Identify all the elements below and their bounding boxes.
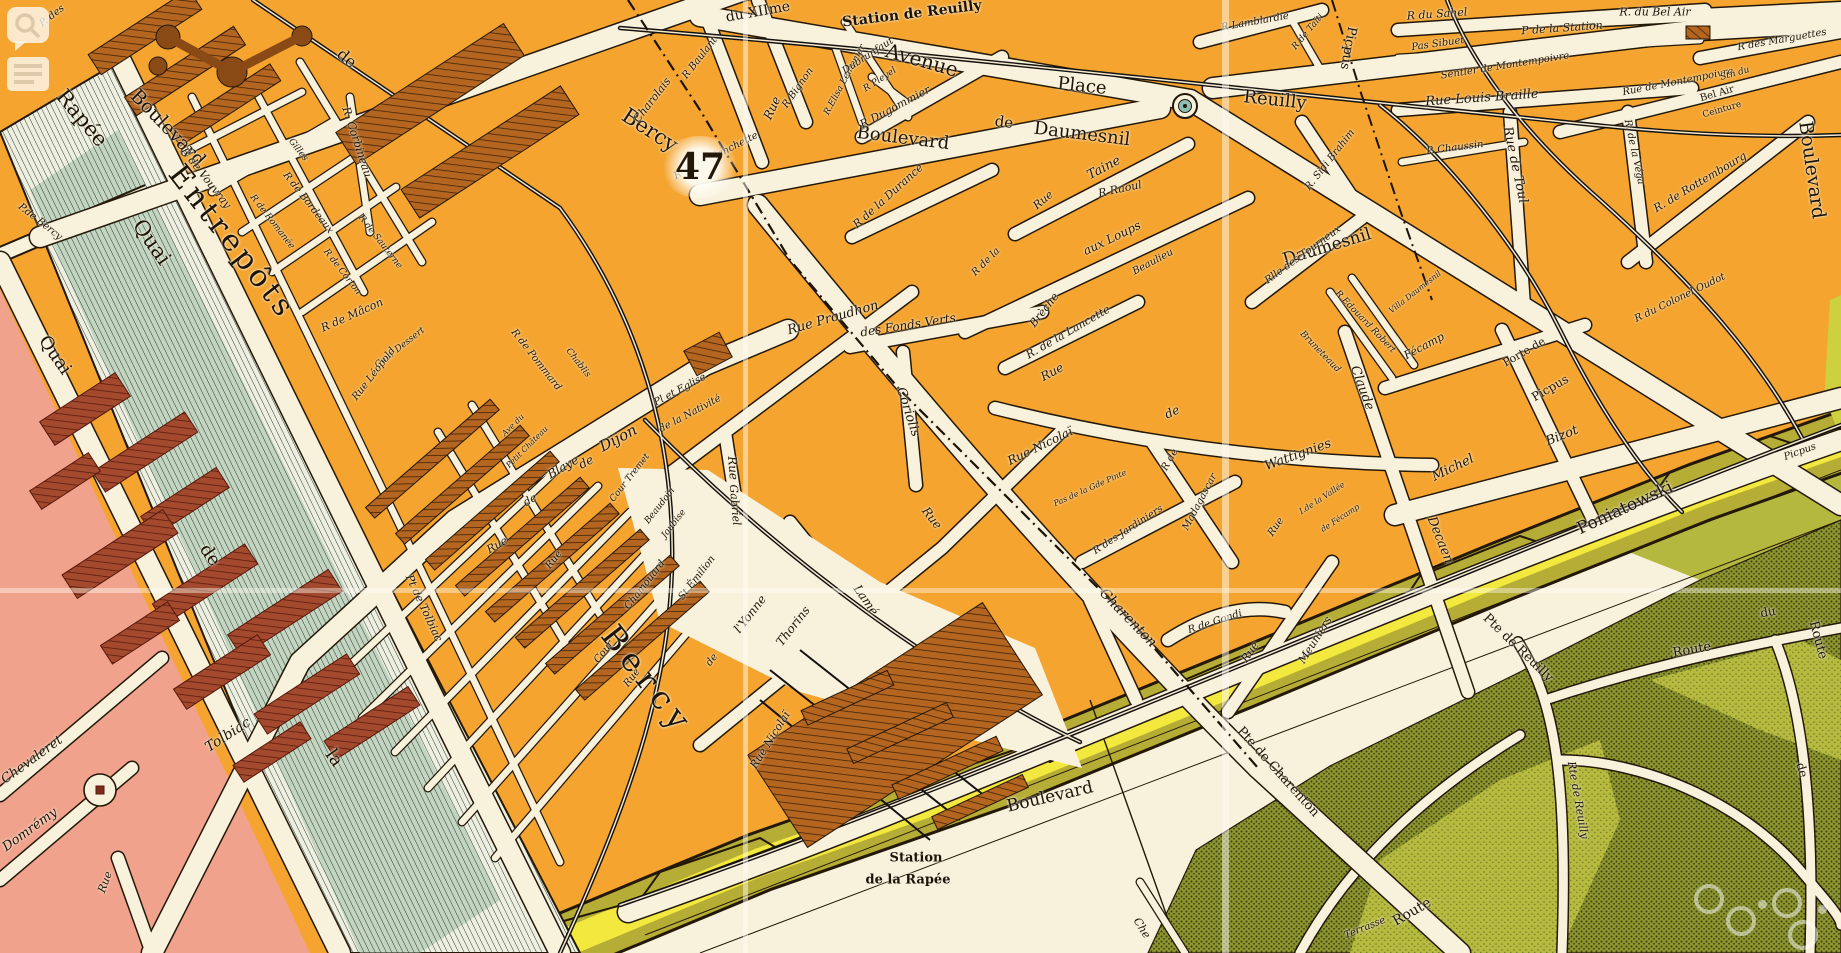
map-street-label: Rue — [1266, 516, 1286, 539]
map-street-label: Rue Léopold — [350, 346, 398, 403]
map-street-label: R des Jardiniers — [1091, 503, 1165, 556]
map-street-label: Pt de Tolbiac — [403, 572, 445, 643]
map-street-label: Daumesnil — [1033, 118, 1132, 151]
speech-bubble-magnifier-icon[interactable] — [6, 6, 52, 52]
map-street-label: R.Edouard Robert — [1333, 289, 1398, 355]
paper-crease — [0, 588, 1841, 593]
map-street-label: Meuniers — [1295, 614, 1334, 666]
map-street-label: Villa Daumesnil — [1387, 269, 1443, 315]
map-street-label: Cour Tremet — [608, 452, 652, 504]
map-street-label: P de la Station — [1521, 19, 1603, 38]
map-street-label: Bercy — [593, 618, 702, 743]
paper-crease — [1222, 0, 1229, 953]
map-street-label: de — [994, 112, 1015, 132]
map-street-label: R du Colonel Oudot — [1633, 271, 1727, 324]
map-street-label: la — [321, 745, 348, 771]
map-street-label: R. de la Véga — [1622, 118, 1647, 185]
map-street-label: Bizot — [1544, 423, 1581, 450]
map-street-label: Picpus — [1529, 372, 1571, 404]
map-street-label: Rue — [919, 504, 945, 531]
map-street-label: Rue — [1030, 188, 1055, 212]
map-street-label: Claude — [1347, 364, 1377, 413]
map-street-label: Ceinture — [1701, 100, 1742, 121]
map-street-label: Rue — [484, 534, 509, 556]
map-street-label: Picpus — [1782, 441, 1817, 463]
map-street-label: de — [704, 652, 720, 668]
map-street-label: Pte de Charenton — [1234, 724, 1323, 820]
map-street-label: Chamouard — [622, 558, 667, 611]
map-street-label: de — [1793, 761, 1810, 779]
map-street-label: R de Taïti — [1290, 12, 1326, 52]
map-street-label: aux Loups — [1081, 218, 1143, 258]
watermark-dot-icon — [1758, 900, 1767, 909]
map-street-label: P.de Bercy — [16, 201, 64, 242]
map-street-label: St Émilion — [676, 554, 717, 602]
map-street-label: R. Sidi Brahim — [1303, 127, 1357, 192]
map-street-label: Che — [1131, 915, 1154, 941]
map-street-label: Reuilly — [1242, 86, 1307, 113]
map-street-label: I.de la Vallée — [1298, 480, 1347, 516]
map-street-label: Rue de Toul — [1500, 125, 1531, 205]
map-street-label: Michel — [1429, 451, 1476, 484]
map-street-label: Ave du — [500, 412, 526, 438]
map-street-label: Blaye — [545, 453, 581, 482]
map-street-label: R de Corton — [321, 247, 363, 297]
map-street-label: Taine — [1085, 153, 1124, 183]
map-street-label: Rte de Reuilly — [1565, 760, 1591, 839]
map-street-label: Pas de la Gde Pinte — [1052, 468, 1127, 508]
map-street-label: Porte de — [1500, 335, 1547, 370]
map-street-label: R. Corbineau — [339, 105, 374, 179]
watermark-ring-icon — [1694, 884, 1724, 914]
map-street-label: de — [333, 44, 360, 71]
map-street-label: Quai — [128, 215, 176, 270]
text-lines-icon[interactable] — [6, 56, 52, 96]
map-street-label: R du Sahel — [1406, 5, 1467, 22]
map-street-label: Tolbiac — [202, 714, 253, 755]
watermark-ring-icon — [1726, 906, 1756, 936]
watermark-dot-icon — [1818, 905, 1827, 914]
map-street-label: du — [1759, 604, 1777, 620]
map-street-label: Brèche — [1027, 290, 1062, 329]
map-street-label: Beaulieu — [1131, 247, 1175, 278]
map-street-label: Terrasse — [1343, 915, 1387, 942]
map-street-label: R. de Rottembourg — [1651, 149, 1749, 215]
watermark-ring-icon — [1788, 920, 1818, 950]
map-street-label: Quai — [34, 331, 76, 378]
map-street-label: Picpus — [1337, 25, 1359, 71]
map-street-label: Place — [1056, 73, 1107, 99]
map-street-label: R Pleyel — [862, 66, 899, 95]
map-street-label: Poniatowski — [1574, 477, 1676, 539]
map-street-label: Pas Sibuet — [1411, 35, 1465, 53]
map-street-label: Station — [890, 851, 943, 866]
map-street-label: Domrémy — [0, 805, 60, 855]
map-street-label: R de — [1159, 447, 1180, 472]
map-street-label: Route — [1390, 895, 1434, 930]
map-street-label: R. du Bel Air — [1619, 6, 1690, 19]
map-street-label: Thorins — [773, 603, 813, 648]
map-street-label: R des Marguettes — [1737, 27, 1828, 53]
map-street-label: de Fécamp — [1319, 502, 1361, 534]
map-street-label: R Baulant — [680, 35, 719, 81]
map-street-label: Pte de Reuilly — [1480, 611, 1556, 685]
map-street-label: Joubise — [660, 508, 688, 540]
map-street-label: Rue Nicolaï — [747, 709, 792, 771]
map-street-label: de — [195, 540, 225, 570]
map-street-label: de — [521, 491, 539, 509]
map-street-label: Station de Reuilly — [841, 0, 982, 30]
watermark-ring-icon — [1772, 888, 1802, 918]
map-street-label: l'Yonne — [731, 592, 769, 635]
street-labels-layer: P. desRapéeQuaiP.de BercyBoulevarddeBerc… — [0, 0, 1841, 953]
map-street-label: Route — [1806, 619, 1831, 660]
map-street-label: R de Gondi — [1187, 608, 1244, 636]
map-street-label: des Fonds Verts — [859, 311, 956, 340]
map-street-label: Rue — [725, 455, 741, 480]
map-street-label: Rue — [1038, 360, 1066, 384]
map-street-label: Decaen — [1424, 514, 1456, 565]
map-street-label: R de Sauterne — [356, 213, 404, 271]
map-street-label: du XIIme — [725, 0, 792, 26]
map-street-label: Bruneteaud — [1298, 329, 1342, 375]
map-street-label: Rapée — [51, 85, 113, 152]
map-street-label: Wattignies — [1263, 436, 1334, 474]
map-street-label: Bel Air — [1699, 84, 1736, 104]
map-street-label: Route — [1672, 639, 1713, 661]
map-street-label: Chevaleret — [0, 733, 66, 788]
map-street-label: Madagascar — [1180, 472, 1219, 532]
map-street-label: Rue Louis Braille — [1425, 87, 1539, 110]
paper-crease — [743, 0, 748, 953]
map-street-label: Rue — [544, 549, 565, 571]
map-street-label: Rue — [95, 869, 115, 894]
map-street-label: R de Mâcon — [319, 296, 385, 335]
map-street-label: Gabriel — [727, 484, 744, 526]
map-street-label: Chablis — [564, 346, 593, 379]
map-street-label: R de Bordeaux — [281, 170, 336, 236]
map-street-label: R Bignon — [780, 66, 816, 110]
map-street-label: R de la — [970, 246, 1003, 279]
map-street-label: Dijon — [596, 421, 640, 456]
map-street-label: Gilles — [286, 137, 310, 163]
map-street-label: R Raoul — [1097, 178, 1143, 200]
map-street-label: Boulevard — [1794, 120, 1829, 220]
map-street-label: Charenton — [1096, 585, 1160, 650]
map-street-label: Rue Nicolaï — [1005, 424, 1075, 468]
map-street-label: Sentier de Montempoivre — [1440, 50, 1570, 81]
map-street-label: Coriolis — [893, 385, 923, 438]
vintage-paris-map-screenshot: { "map": { "sheet_number": "47", "descri… — [0, 0, 1841, 953]
map-street-label: Rue — [1238, 639, 1261, 664]
map-street-label: R de la Durance — [850, 161, 925, 231]
map-street-label: de — [1162, 403, 1181, 422]
map-street-label: de la Rapée — [866, 873, 951, 888]
map-street-label: P. Chaussin — [1426, 139, 1484, 157]
map-street-label: Boulevard — [1005, 777, 1095, 816]
sheet-number-badge: 47 — [659, 136, 741, 198]
map-street-label: Fécamp — [1402, 330, 1447, 362]
map-street-label: R Lamblardie — [1220, 11, 1290, 34]
map-street-label: Rue — [761, 94, 784, 122]
map-street-label: R de Pommard — [509, 327, 564, 393]
